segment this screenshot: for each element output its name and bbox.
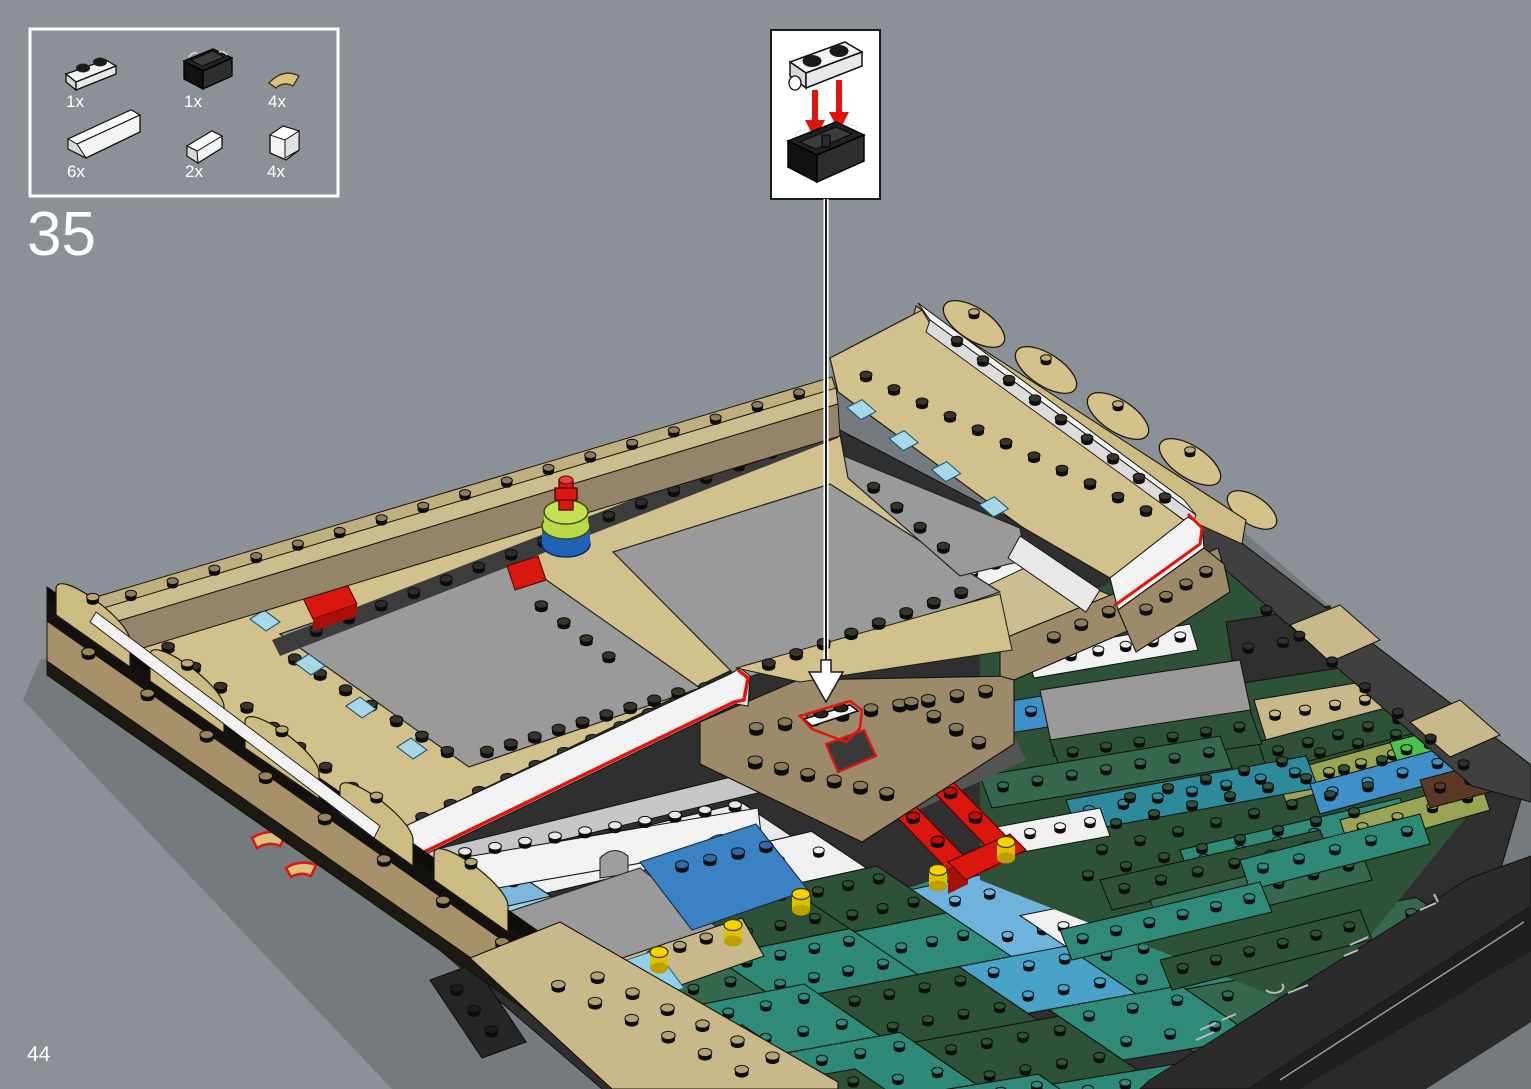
svg-text:4x: 4x: [267, 162, 285, 181]
svg-text:1x: 1x: [66, 92, 84, 111]
svg-text:2x: 2x: [185, 162, 203, 181]
svg-text:6x: 6x: [67, 162, 85, 181]
svg-text:1x: 1x: [184, 92, 202, 111]
svg-text:4x: 4x: [268, 92, 286, 111]
svg-text:35: 35: [27, 200, 96, 269]
svg-text:44: 44: [27, 1043, 51, 1066]
